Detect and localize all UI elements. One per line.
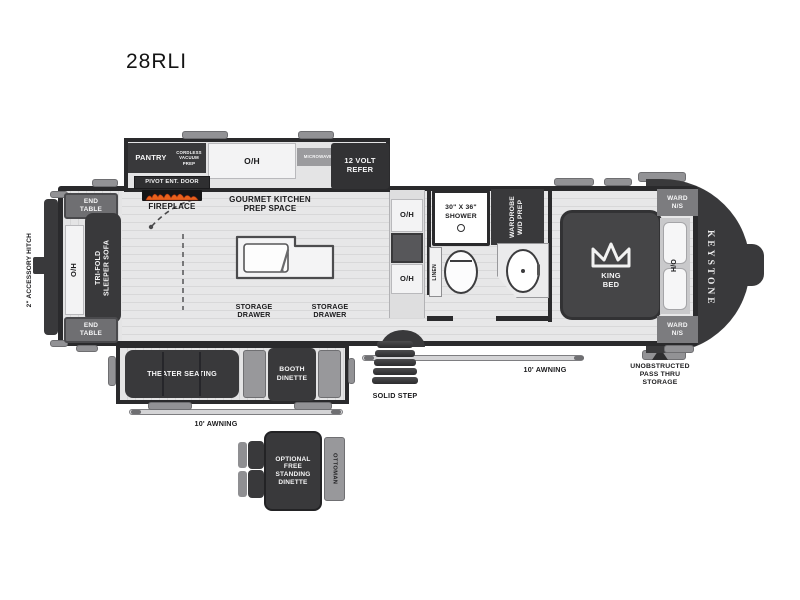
seat-divider [199,352,201,396]
awning-right-label: 10' AWNING [500,366,590,374]
solid-step-label: SOLID STEP [352,392,438,400]
slide-handle-tab [554,178,594,186]
bath-wall-bottom-left [427,316,453,321]
floorplan-canvas: 28RLI 2" ACCESSORY HITCH END TABLE O/H T… [0,0,800,600]
optional-free-standing-dinette: OPTIONAL FREE STANDING DINETTE [264,431,322,511]
range-cooktop [391,233,423,263]
door-swing-arc [140,194,210,314]
slide-handle-tab [108,356,116,386]
end-table-bottom: END TABLE [64,317,118,343]
dinette-chair [248,470,264,498]
booth-bench-right [318,350,341,398]
toilet-icon [444,250,478,294]
dinette-chair-back [238,471,247,497]
kitchen-island [235,232,335,280]
toilet-seat-line [450,260,472,262]
awning-end-cap [131,410,141,414]
king-bed: KING BED [560,210,662,320]
vanity-faucet-icon [537,264,540,276]
ho-label: H/O [660,218,690,314]
wardrobe-wd-prep: WARDROBE W/D PREP [491,189,544,245]
slide-handle-tab [148,402,192,410]
fireplace-flame-icon [142,190,202,201]
wardrobe-nightstand-bottom: WARD N/S [657,316,698,343]
slide-handle-tab [182,131,228,139]
sofa-overhead-cabinet: O/H [65,225,84,315]
dinette-chair-back [238,442,247,468]
slide-handle-tab [348,358,355,384]
shower: 30" X 36" SHOWER [432,190,490,246]
crown-icon [589,241,633,269]
storage-drawer-right-label: STORAGE DRAWER [298,303,362,320]
keystone-logo: KEYSTONE [700,206,720,330]
twelve-volt-refer: 12 VOLT REFER [331,143,389,189]
pass-thru-label: UNOBSTRUCTED PASS THRU STORAGE [626,363,694,387]
dinette-chair [248,441,264,469]
kingpin [746,244,764,286]
slide-handle-tab [76,345,98,352]
cordless-vacuum-prep: CORDLESS VACUUM PREP [174,150,206,166]
awning-end-cap [574,356,584,360]
floorplan-title: 28RLI [126,50,187,74]
seat-divider [162,352,164,396]
accessory-hitch-stub [33,257,46,274]
pantry: PANTRY CORDLESS VACUUM PREP [128,143,206,173]
booth-bench-left [243,350,266,398]
counter-overhead-upper: O/H [391,199,423,232]
awning-end-cap [331,410,341,414]
storage-drawer-left-label: STORAGE DRAWER [222,303,286,320]
theater-seating: THEATER SEATING [125,350,239,398]
shower-drain-icon [457,224,465,232]
booth-dinette-table: BOOTH DINETTE [268,348,316,401]
ottoman: OTTOMAN [324,437,345,501]
pivot-entry-door: PIVOT ENT. DOOR [134,176,210,189]
kitchen-overhead-cabinet: O/H [208,143,296,179]
rear-bumper [44,199,58,335]
fireplace-label: FIREPLACE [132,202,212,211]
linen-cabinet: LINEN [429,247,442,297]
wardrobe-nightstand-top: WARD N/S [657,189,698,216]
slide-handle-tab [664,345,694,353]
slide-handle-tab [604,178,632,186]
sink-drain-dot [521,269,525,273]
bath-wall-bottom-right [496,316,552,321]
slide-handle-tab [92,179,118,187]
awning-left-label: 10' AWNING [170,420,262,428]
counter-overhead-lower: O/H [391,264,423,294]
sink-icon [244,244,288,272]
gourmet-kitchen-label: GOURMET KITCHEN PREP SPACE [214,195,326,214]
slide-handle-tab [294,402,332,410]
slide-handle-tab [298,131,334,139]
tri-fold-sleeper-sofa: TRI-FOLD SLEEPER SOFA [85,213,121,323]
solid-step [372,341,418,389]
